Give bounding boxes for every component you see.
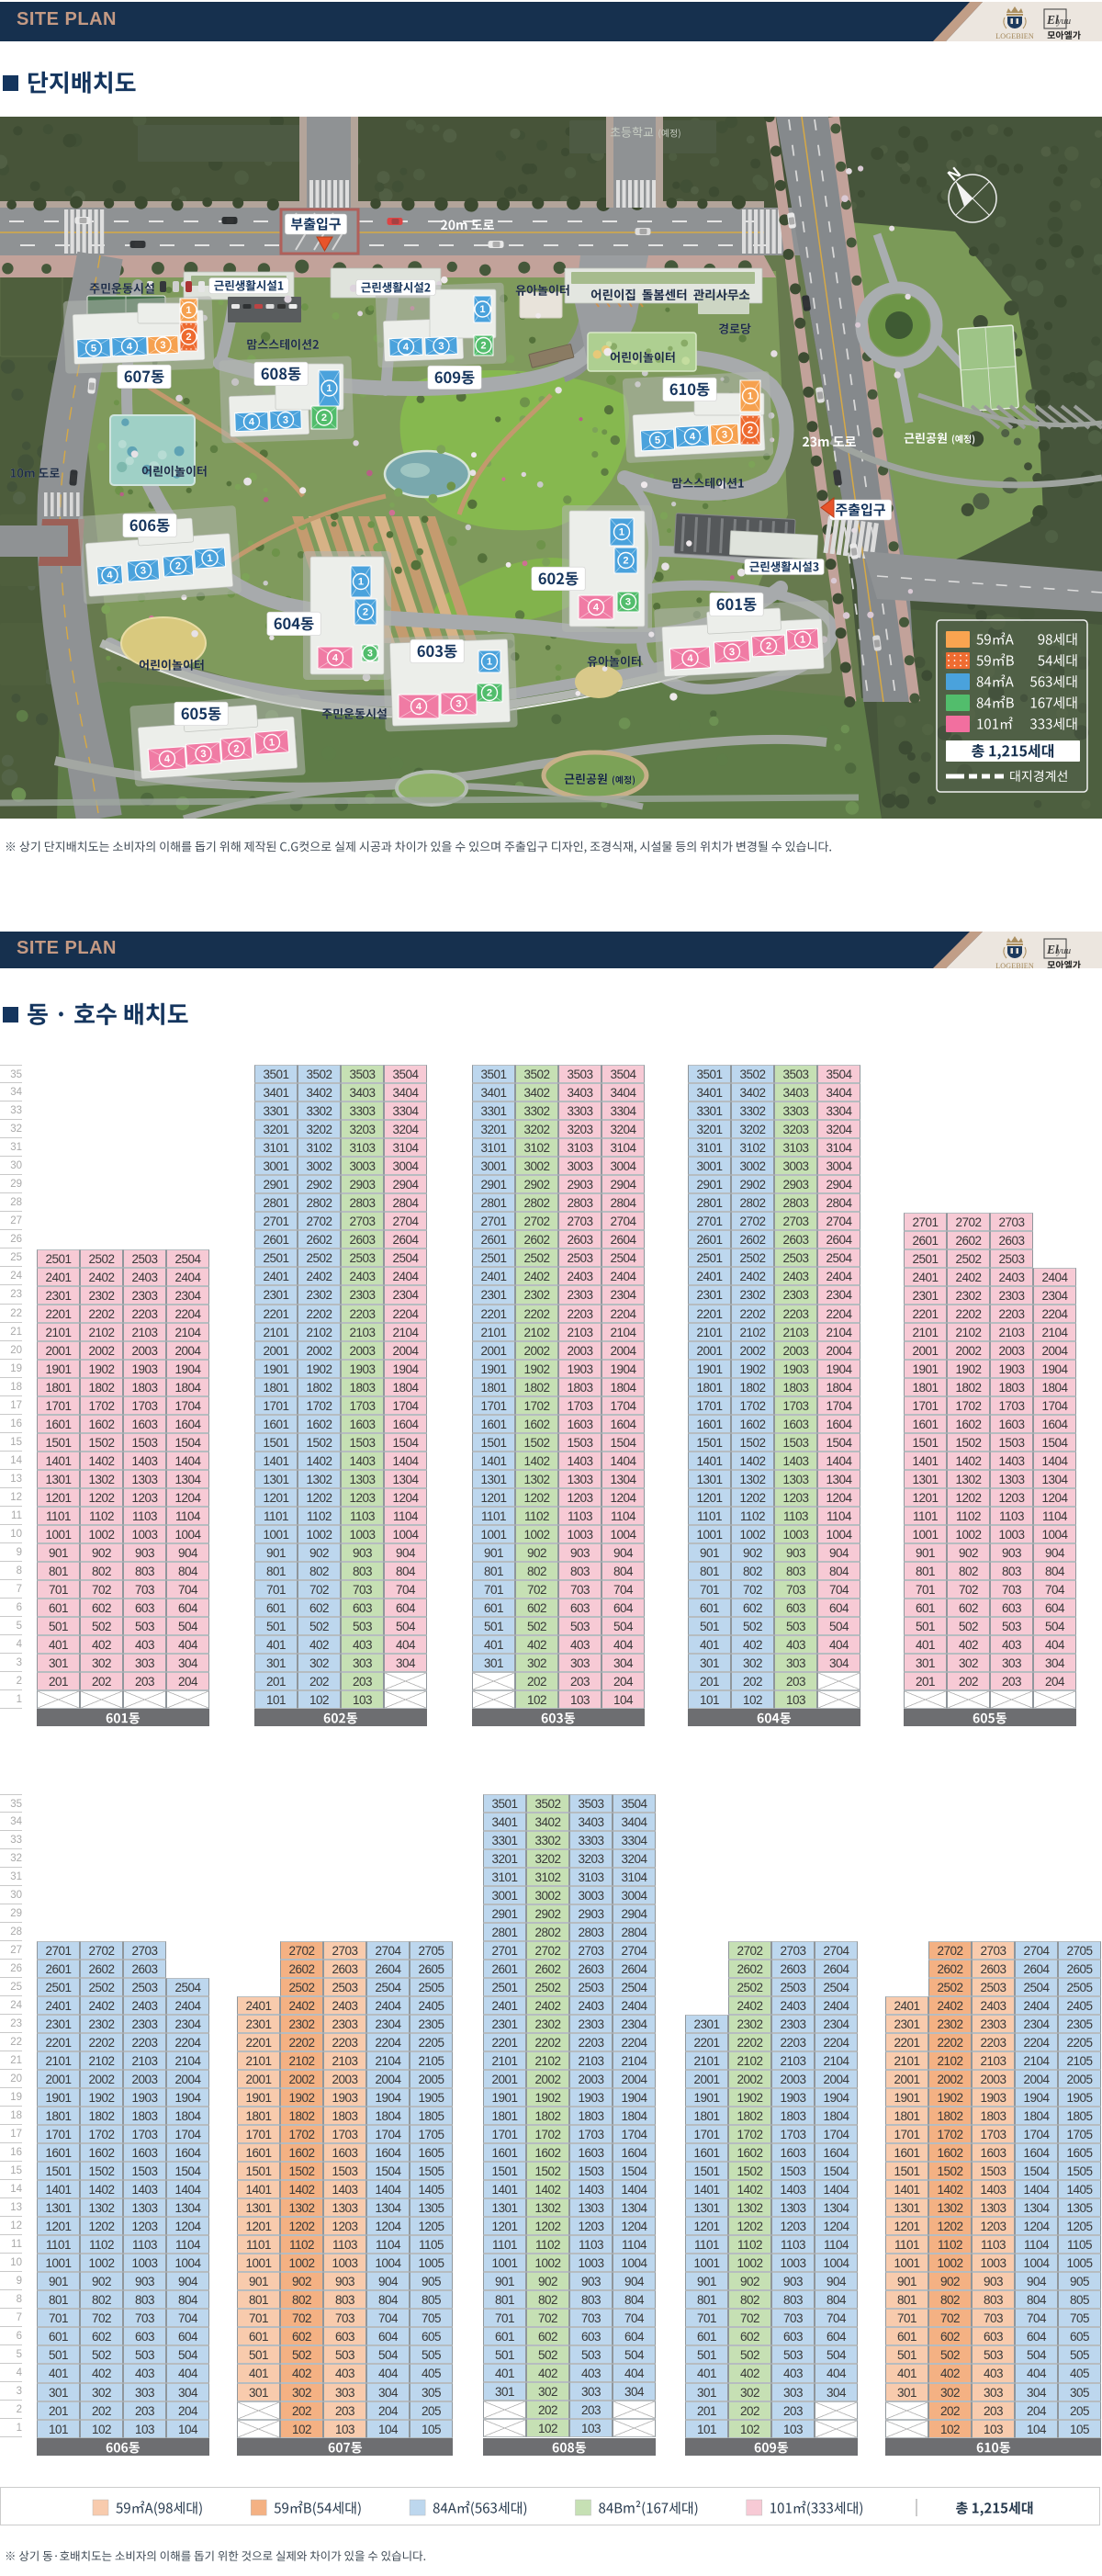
svg-text:2: 2 (363, 607, 368, 618)
svg-text:2: 2 (175, 560, 182, 571)
svg-text:3: 3 (283, 414, 289, 425)
svg-text:1: 1 (619, 527, 624, 538)
svg-text:3: 3 (160, 340, 166, 351)
svg-text:1: 1 (800, 634, 806, 645)
svg-text:2: 2 (623, 556, 628, 567)
svg-text:2: 2 (766, 640, 772, 651)
svg-text:4: 4 (332, 653, 339, 664)
svg-text:2: 2 (748, 425, 753, 436)
svg-text:3: 3 (438, 341, 444, 352)
svg-text:2: 2 (480, 341, 486, 352)
svg-text:4: 4 (593, 603, 600, 614)
svg-text:4: 4 (416, 702, 422, 713)
svg-text:1: 1 (207, 553, 213, 564)
svg-text:yuu: yuu (1056, 17, 1071, 27)
svg-text:LOGEBIEN: LOGEBIEN (995, 962, 1034, 968)
svg-text:yuu: yuu (1056, 946, 1071, 956)
svg-text:3: 3 (729, 647, 736, 658)
svg-text:LOGEBIEN: LOGEBIEN (995, 32, 1034, 40)
svg-text:3: 3 (455, 699, 461, 710)
svg-text:2: 2 (233, 743, 240, 754)
svg-text:2: 2 (321, 412, 327, 424)
svg-text:1: 1 (487, 657, 492, 668)
svg-text:5: 5 (91, 343, 97, 354)
svg-text:3: 3 (367, 648, 373, 659)
svg-text:2: 2 (487, 688, 492, 699)
svg-text:5: 5 (655, 435, 661, 446)
svg-text:1: 1 (326, 383, 332, 394)
svg-text:1: 1 (358, 577, 364, 588)
svg-text:3: 3 (722, 429, 728, 440)
svg-text:3: 3 (625, 597, 631, 608)
svg-text:1: 1 (479, 304, 485, 315)
svg-text:1: 1 (269, 737, 275, 748)
svg-text:1: 1 (748, 391, 753, 402)
svg-text:3: 3 (200, 749, 207, 760)
svg-text:2: 2 (186, 332, 191, 343)
svg-text:3: 3 (141, 565, 147, 576)
svg-text:1: 1 (186, 305, 191, 316)
